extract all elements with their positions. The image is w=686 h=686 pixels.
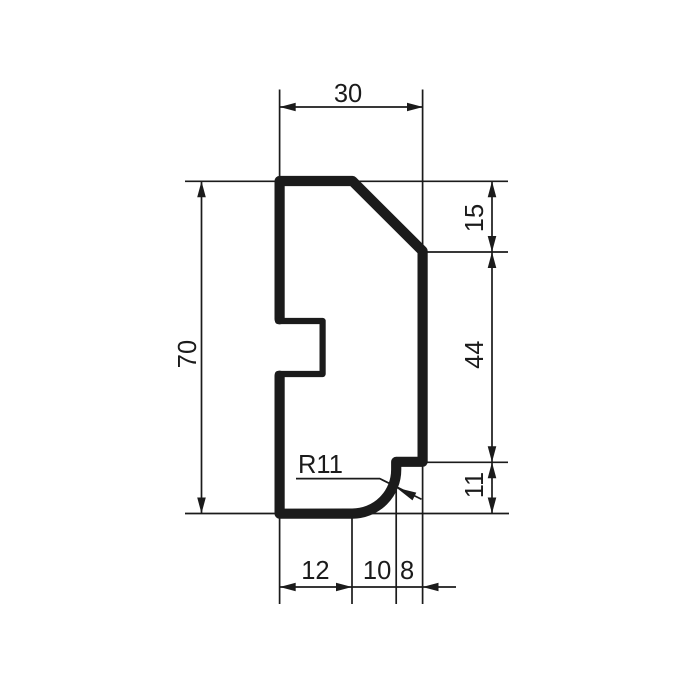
svg-text:8: 8 (400, 557, 414, 585)
svg-text:30: 30 (334, 80, 362, 108)
svg-text:70: 70 (174, 340, 202, 368)
svg-text:R11: R11 (298, 451, 343, 479)
svg-text:44: 44 (461, 341, 489, 369)
svg-text:11: 11 (461, 472, 489, 498)
svg-text:10: 10 (363, 557, 391, 585)
svg-text:15: 15 (461, 204, 489, 232)
svg-text:12: 12 (301, 557, 329, 585)
